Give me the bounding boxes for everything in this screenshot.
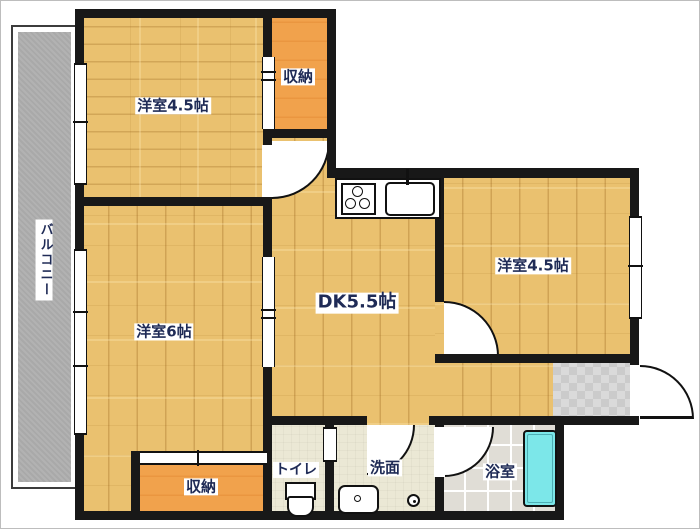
washbasin-icon — [338, 485, 379, 514]
balcony-label: バルコニー — [36, 220, 53, 301]
wall-closet-top-bottom — [263, 129, 336, 138]
wall-dk-top — [327, 168, 639, 178]
sliding-door-closet-bottom-icon — [140, 451, 267, 465]
bathroom-doorway — [434, 427, 445, 477]
wall-closet-bottom-left — [131, 451, 140, 520]
wall-right-upper — [630, 168, 639, 216]
stove-icon — [341, 183, 376, 215]
sink-icon — [385, 182, 435, 216]
wall-room-top-left-bottom — [75, 197, 272, 206]
hall-floor — [435, 357, 559, 425]
bathroom-label: 浴室 — [483, 463, 517, 480]
closet-top-label: 収納 — [281, 68, 315, 85]
doorway-room-top-left — [262, 145, 273, 197]
wall-mid-vert-upper — [263, 197, 272, 257]
wall-bottom — [75, 511, 564, 520]
wall-service-top-a — [263, 416, 367, 425]
wall-service-top-b — [429, 416, 639, 425]
wall-room-right-bottom — [435, 354, 639, 363]
window-room-left-icon — [74, 249, 87, 435]
sliding-door-room-left-icon — [262, 257, 275, 367]
bathtub-icon — [523, 430, 557, 507]
toilet-bowl-icon — [287, 496, 314, 517]
wall-closet-top-left-a — [263, 9, 272, 57]
dk-label: DK5.5帖 — [316, 293, 399, 314]
toilet-label: トイレ — [273, 462, 319, 478]
room-left-label: 洋室6帖 — [134, 323, 193, 340]
floor-plan: 洋室4.5帖 収納 洋室4.5帖 DK5.5帖 洋室6帖 収納 トイレ 洗面 浴… — [0, 0, 700, 529]
faucet-icon — [406, 169, 409, 185]
window-room-right-icon — [629, 216, 642, 319]
wall-closet-top-right — [327, 9, 336, 178]
room-right-label: 洋室4.5帖 — [495, 257, 571, 274]
entrance-door-leaf-icon — [640, 416, 692, 419]
window-room-top-left-icon — [74, 63, 87, 185]
closet-top-opening-icon — [262, 57, 275, 129]
entrance-door-swing-icon — [640, 365, 694, 419]
entrance-floor — [553, 359, 630, 421]
toilet-door-icon — [323, 427, 337, 462]
washer-drain-icon — [407, 494, 420, 507]
room-top-left-label: 洋室4.5帖 — [135, 97, 211, 114]
wall-top-left — [75, 9, 335, 18]
washroom-label: 洗面 — [368, 459, 402, 476]
wall-mid-vert-lower — [263, 367, 272, 520]
closet-bottom-label: 収納 — [184, 478, 218, 495]
